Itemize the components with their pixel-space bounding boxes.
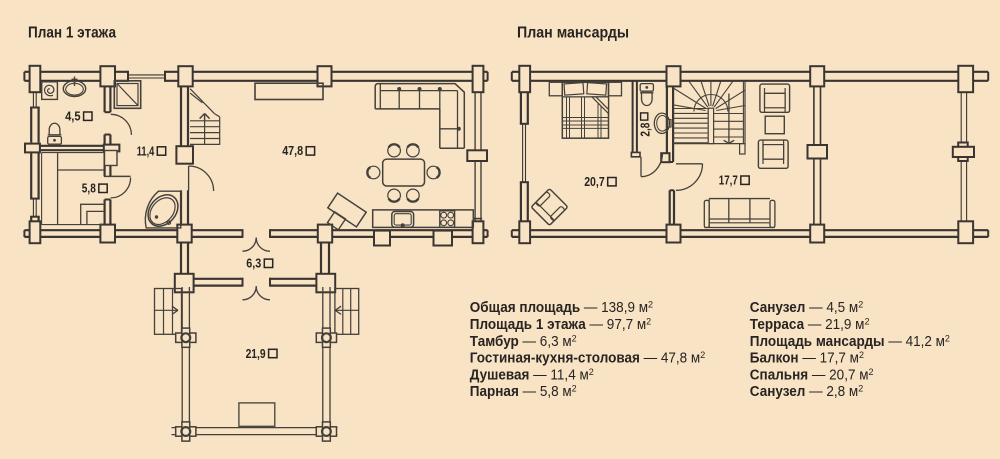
svg-text:Спальня — 20,7 м2: Спальня — 20,7 м2 [750, 366, 874, 382]
svg-text:Площадь мансарды — 41,2 м2: Площадь мансарды — 41,2 м2 [750, 332, 950, 348]
svg-text:21,9: 21,9 [246, 347, 266, 361]
svg-text:Парная — 5,8 м2: Парная — 5,8 м2 [470, 383, 577, 399]
svg-text:6,3: 6,3 [246, 257, 261, 271]
svg-text:Тамбур — 6,3 м2: Тамбур — 6,3 м2 [470, 332, 577, 348]
svg-text:Санузел — 2,8 м2: Санузел — 2,8 м2 [750, 383, 863, 399]
svg-text:17,7: 17,7 [719, 174, 738, 188]
svg-text:20,7: 20,7 [584, 175, 605, 189]
svg-text:Площадь 1 этажа — 97,7 м2: Площадь 1 этажа — 97,7 м2 [470, 316, 651, 332]
svg-text:5,8: 5,8 [82, 182, 96, 196]
svg-text:Душевая — 11,4 м2: Душевая — 11,4 м2 [470, 366, 594, 382]
svg-text:47,8: 47,8 [282, 144, 303, 158]
svg-text:Балкон — 17,7 м2: Балкон — 17,7 м2 [750, 349, 864, 365]
svg-text:Терраса — 21,9 м2: Терраса — 21,9 м2 [750, 316, 870, 332]
svg-text:Гостиная-кухня-столовая — 47,8: Гостиная-кухня-столовая — 47,8 м2 [470, 349, 705, 365]
svg-text:2,8: 2,8 [639, 123, 653, 137]
svg-text:Общая площадь — 138,9 м2: Общая площадь — 138,9 м2 [470, 299, 653, 315]
svg-text:4,5: 4,5 [65, 110, 81, 124]
svg-text:План мансарды: План мансарды [517, 25, 629, 42]
svg-text:План 1 этажа: План 1 этажа [28, 25, 116, 42]
svg-text:Санузел — 4,5 м2: Санузел — 4,5 м2 [750, 299, 863, 315]
svg-text:11,4: 11,4 [137, 144, 155, 158]
